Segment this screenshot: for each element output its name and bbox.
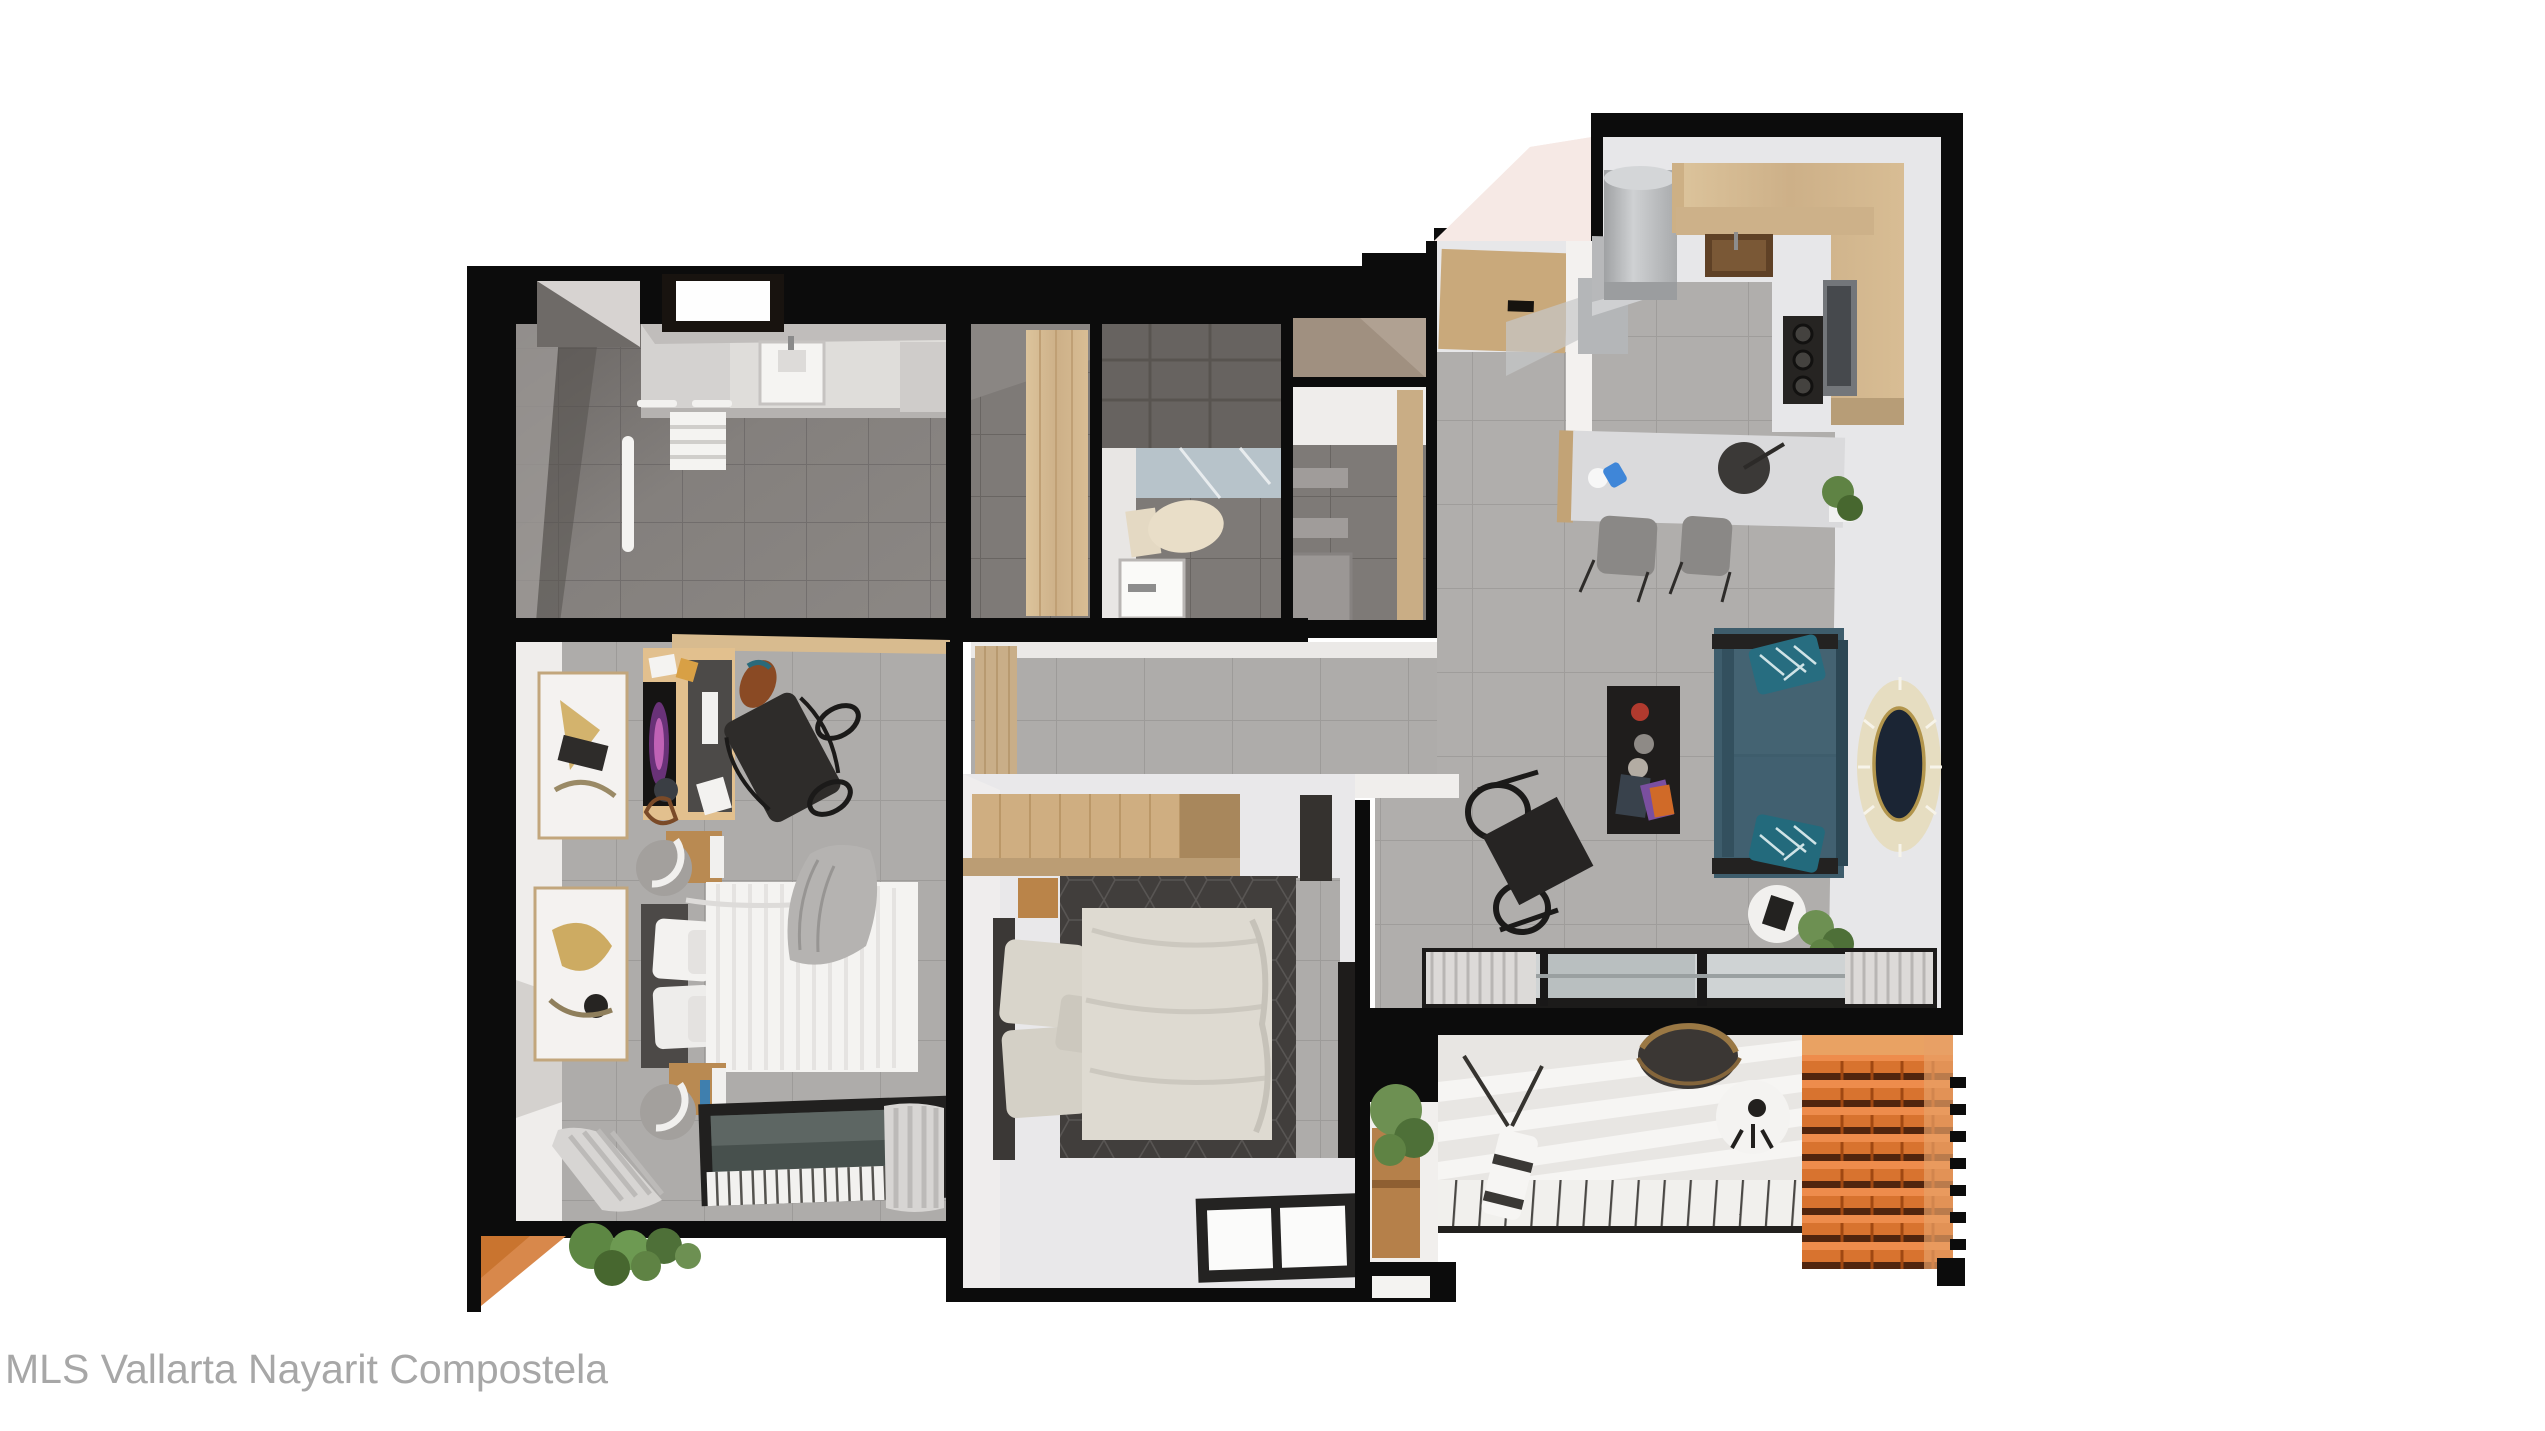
svg-text:MLS Vallarta Nayarit Compostel: MLS Vallarta Nayarit Compostela bbox=[5, 1346, 608, 1392]
